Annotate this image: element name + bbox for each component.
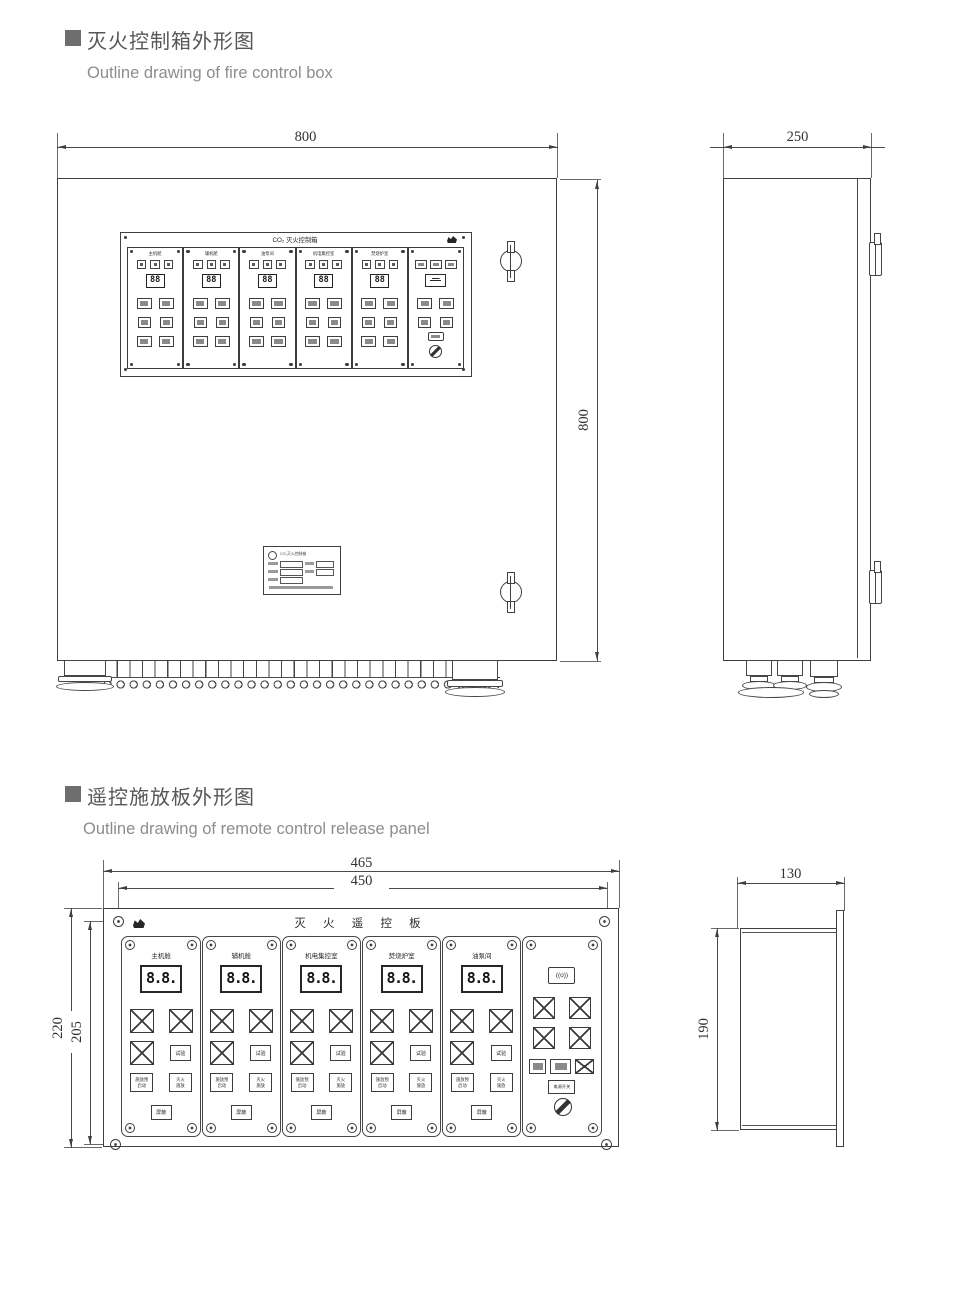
display-row: 8.8. (363, 965, 440, 993)
panel-module: 辅机舱 88 (183, 247, 239, 369)
power-switch-label: 电源开关 (548, 1080, 575, 1094)
button-row (409, 298, 463, 309)
display-row: 88 (353, 274, 407, 288)
indicator-lamp (389, 260, 399, 269)
module-label: 主机舱 (128, 251, 182, 257)
prestart-button: 施放预 启动 (130, 1073, 153, 1092)
indicator-lamp-row (297, 260, 351, 269)
module-screw-icon (366, 940, 376, 950)
indicator-lamp (305, 260, 315, 269)
module-screw-icon (458, 363, 461, 366)
module-screw-icon (366, 1123, 376, 1133)
dimension-arrow (88, 1136, 92, 1144)
extension-line (619, 860, 620, 908)
mask-button: 屏蔽 (471, 1105, 492, 1120)
release-label-2: 施放 (176, 1083, 185, 1088)
section-bullet-square (65, 30, 81, 46)
panel-button (271, 298, 286, 309)
lamp-row (523, 1027, 600, 1049)
dimension-arrow (599, 886, 607, 890)
nameplate-field-label (305, 570, 314, 573)
extension-line (103, 860, 104, 908)
module-screw-icon (233, 363, 236, 366)
nameplate-field-label (268, 570, 278, 573)
lamp-test-row: 试验 (122, 1041, 199, 1065)
button-row (184, 317, 238, 328)
cable-gland-row (101, 679, 499, 690)
door-latch-icon (499, 239, 525, 287)
module-screw-icon (507, 940, 517, 950)
action-button-row: 施放预 启动 灭火 施放 (363, 1073, 440, 1092)
prestart-button: 施放预 启动 (371, 1073, 394, 1092)
button-row (297, 336, 351, 347)
dimension-arrow (119, 886, 127, 890)
button-row (409, 317, 463, 328)
indicator-lamp-x (249, 1009, 273, 1033)
panel-module: 机电集控室 88 (296, 247, 352, 369)
dimension-arrow (715, 1122, 719, 1130)
display-row: 8.8. (443, 965, 520, 993)
indicator-lamp (362, 260, 372, 269)
dimension-line (57, 147, 558, 148)
test-button: 试验 (170, 1045, 191, 1061)
dimension-arrow (69, 909, 73, 917)
test-button: 试验 (250, 1045, 271, 1061)
dim-panel-outer-width: 465 (334, 855, 389, 871)
test-button: 试验 (410, 1045, 431, 1061)
module-screw-icon (267, 940, 277, 950)
display-row: 88 (128, 274, 182, 288)
door-edge-line (857, 179, 858, 658)
module-screw-icon (206, 1123, 216, 1133)
indicator-lamp-row (184, 260, 238, 269)
panel-button (327, 336, 342, 347)
action-button-row: 施放预 启动 灭火 施放 (122, 1073, 199, 1092)
section1-title-cn: 灭火控制箱外形图 (87, 25, 255, 54)
indicator-lamp-row (240, 260, 294, 269)
dim-panel-inner-width: 450 (334, 873, 389, 889)
cable-gland-comb (104, 660, 496, 678)
panel-button (384, 317, 397, 328)
display-row: 8.8. (203, 965, 280, 993)
module-screw-icon (411, 363, 414, 366)
indicator-lamp-x (290, 1041, 314, 1065)
module-label: 机电集控室 (297, 251, 351, 257)
dim-remote-height: 190 (696, 1008, 712, 1050)
dimension-arrow (58, 145, 66, 149)
door-latch-icon (499, 570, 525, 618)
module-label: 焚烧炉室 (363, 950, 440, 960)
panel-button (193, 336, 208, 347)
module-label: 机电集控室 (283, 950, 360, 960)
test-button: 试验 (491, 1045, 512, 1061)
extension-line (560, 179, 601, 180)
dimension-line (717, 928, 718, 1131)
module-screw-icon (267, 1123, 277, 1133)
display-row: 8.8. (283, 965, 360, 993)
panel-button (272, 317, 285, 328)
module-screw-icon (125, 1123, 135, 1133)
action-button-row: 施放预 启动 灭火 施放 (283, 1073, 360, 1092)
section1-title-en: Outline drawing of fire control box (87, 64, 333, 83)
button-row (184, 336, 238, 347)
mount-foot (452, 660, 498, 680)
display-row: 8.8. (122, 965, 199, 993)
prestart-label-2: 启动 (137, 1083, 146, 1088)
latch-slot (510, 576, 512, 609)
lamp-row (283, 1009, 360, 1033)
indicator-lamp (193, 260, 203, 269)
indicator-lamp-x (533, 1027, 555, 1049)
panel-button (305, 336, 320, 347)
seven-segment-display: 88 (202, 274, 221, 288)
module-screw-icon (289, 363, 292, 366)
module-label: 油泵间 (443, 950, 520, 960)
latch-slot (510, 245, 512, 278)
section2-title-cn: 遥控施放板外形图 (87, 781, 255, 810)
lamp-test-row: 试验 (283, 1041, 360, 1065)
indicator-lamp-x (169, 1009, 193, 1033)
module-screw-icon (458, 250, 461, 253)
dimension-arrow (724, 145, 732, 149)
indicator-lamp-x (210, 1041, 234, 1065)
dimension-arrow (595, 652, 599, 660)
mask-button: 屏蔽 (231, 1105, 252, 1120)
module-screw-icon (187, 1123, 197, 1133)
hinge-icon (869, 570, 882, 604)
section-bullet-square (65, 786, 81, 802)
mount-foot-base (56, 682, 114, 691)
section2-title-en: Outline drawing of remote control releas… (83, 820, 430, 839)
lamp-row (523, 997, 600, 1019)
sounder-row: ((o)) (523, 967, 600, 984)
panel-button (249, 298, 264, 309)
meter-icon (425, 274, 446, 287)
module-screw-icon (588, 1123, 598, 1133)
lamp-row (443, 1009, 520, 1033)
nameplate-title: CO₂灭火控制箱 (280, 552, 332, 557)
panel-button (529, 1059, 546, 1074)
panel-module: 油泵间 88 (239, 247, 295, 369)
cable-gland-base-wide (738, 687, 804, 698)
dimension-arrow (88, 922, 92, 930)
display-row: 88 (240, 274, 294, 288)
button-row (353, 336, 407, 347)
mount-screw-icon (110, 1139, 121, 1150)
extension-line (723, 133, 724, 178)
extension-line (57, 133, 58, 178)
dim-panel-inner-height: 205 (69, 1011, 85, 1053)
panel-button (249, 336, 264, 347)
release-label-2: 施放 (256, 1083, 265, 1088)
remote-module: 辅机舱 8.8. 试验 (202, 936, 281, 1137)
nameplate-field-box (280, 577, 303, 584)
indicator-lamp-row (353, 260, 407, 269)
button-row (128, 317, 182, 328)
extension-line (557, 133, 558, 178)
dimension-line (737, 883, 845, 884)
remote-module-common: ((o)) 电源开关 (522, 936, 601, 1137)
indicator-lamp-x (130, 1009, 154, 1033)
indicator-lamp-x (450, 1041, 474, 1065)
prestart-button: 施放预 启动 (210, 1073, 233, 1092)
action-button-row: 施放预 启动 灭火 施放 (443, 1073, 520, 1092)
nameplate-field-box (316, 561, 334, 568)
indicator-lamp (164, 260, 174, 269)
indicator-lamp-x (489, 1009, 513, 1033)
module-screw-icon (526, 940, 536, 950)
seven-segment-display: 8.8. (140, 965, 182, 993)
module-screw-icon (299, 363, 302, 366)
mount-screw-icon (601, 1139, 612, 1150)
button-row (353, 317, 407, 328)
module-screw-icon (125, 940, 135, 950)
module-screw-icon (187, 940, 197, 950)
indicator-lamp-x (533, 997, 555, 1019)
indicator-lamp (445, 260, 457, 269)
seven-segment-display: 8.8. (461, 965, 503, 993)
indicator-lamp (207, 260, 217, 269)
release-button: 灭火 施放 (249, 1073, 272, 1092)
indicator-lamp-x (409, 1009, 433, 1033)
indicator-lamp (375, 260, 385, 269)
plate-inner-line (742, 1125, 836, 1126)
extension-line (560, 661, 601, 662)
lamp-test-row: 试验 (203, 1041, 280, 1065)
panel-button (383, 336, 398, 347)
dimension-arrow (836, 881, 844, 885)
indicator-lamp-x (569, 1027, 591, 1049)
panel-button (362, 317, 375, 328)
mask-button-row: 屏蔽 (363, 1105, 440, 1120)
prestart-label-2: 启动 (298, 1083, 307, 1088)
seven-segment-display: 8.8. (381, 965, 423, 993)
panel-button (417, 298, 432, 309)
mask-button: 屏蔽 (151, 1105, 172, 1120)
release-label-2: 施放 (417, 1083, 426, 1088)
nameplate-maker-text (269, 586, 333, 589)
panel-button (193, 298, 208, 309)
dimension-arrow (863, 145, 871, 149)
control-panel-title: CO₂ 灭火控制箱 (120, 235, 470, 244)
panel-module-common (408, 247, 464, 369)
mask-button-row: 屏蔽 (283, 1105, 360, 1120)
panel-button (194, 317, 207, 328)
nameplate: CO₂灭火控制箱 (263, 546, 341, 595)
panel-button (361, 336, 376, 347)
dim-box-depth: 250 (770, 129, 825, 145)
nameplate-field-box (280, 569, 303, 576)
button-row (353, 298, 407, 309)
indicator-lamp (137, 260, 147, 269)
module-screw-icon (446, 1123, 456, 1133)
mount-foot (64, 660, 106, 676)
indicator-lamp-x (130, 1041, 154, 1065)
mask-button-row: 屏蔽 (122, 1105, 199, 1120)
power-rotary-switch-icon (554, 1098, 572, 1116)
panel-button (159, 336, 174, 347)
indicator-lamp (276, 260, 286, 269)
sounder-icon: ((o)) (548, 967, 575, 984)
panel-module: 主机舱 88 (127, 247, 183, 369)
button-row (128, 336, 182, 347)
module-screw-icon (345, 363, 348, 366)
indicator-lamp-x (569, 997, 591, 1019)
nameplate-logo-icon (268, 551, 277, 560)
mask-button-row: 屏蔽 (203, 1105, 280, 1120)
panel-button (361, 298, 376, 309)
button-row (297, 317, 351, 328)
indicator-lamp (319, 260, 329, 269)
switch-label (428, 332, 444, 341)
power-label-row: 电源开关 (523, 1080, 600, 1094)
button-row (297, 298, 351, 309)
panel-button (215, 336, 230, 347)
module-label: 焚烧炉室 (353, 251, 407, 257)
remote-panel-modules: 主机舱 8.8. 试验 (121, 936, 602, 1137)
test-button: 试验 (330, 1045, 351, 1061)
dim-box-height: 800 (576, 399, 592, 441)
indicator-lamp (415, 260, 427, 269)
module-screw-icon (186, 363, 189, 366)
prestart-button: 施放预 启动 (451, 1073, 474, 1092)
indicator-lamp-x (450, 1009, 474, 1033)
panel-button (305, 298, 320, 309)
lamp-row (203, 1009, 280, 1033)
indicator-lamp (332, 260, 342, 269)
indicator-lamp-x (370, 1009, 394, 1033)
remote-module: 油泵间 8.8. 试验 (442, 936, 521, 1137)
display-row: 88 (297, 274, 351, 288)
panel-button (137, 298, 152, 309)
panel-button (271, 336, 286, 347)
module-label: 辅机舱 (184, 251, 238, 257)
indicator-lamp-x (370, 1041, 394, 1065)
extension-line (64, 1147, 102, 1148)
nameplate-field-label (305, 562, 314, 565)
indicator-lamp-row (409, 260, 463, 269)
seven-segment-display: 88 (258, 274, 277, 288)
module-screw-icon (347, 940, 357, 950)
module-label: 主机舱 (122, 950, 199, 960)
mount-screw-icon (113, 916, 124, 927)
extension-line (871, 133, 872, 178)
remote-panel-title: 灭 火 遥 控 板 (200, 915, 522, 931)
module-screw-icon (427, 940, 437, 950)
dimension-arrow (595, 181, 599, 189)
panel-button (439, 298, 454, 309)
module-screw-icon (177, 363, 180, 366)
panel-button (550, 1059, 571, 1074)
nameplate-field-box (280, 561, 303, 568)
dim-remote-depth: 130 (763, 866, 818, 882)
remote-panel-side-view (740, 928, 838, 1130)
prestart-button: 施放预 启动 (291, 1073, 314, 1092)
dimension-arrow (104, 869, 112, 873)
panel-button (138, 317, 151, 328)
mask-button: 屏蔽 (311, 1105, 332, 1120)
release-button: 灭火 施放 (329, 1073, 352, 1092)
button-row (184, 298, 238, 309)
panel-button (215, 298, 230, 309)
display-row: 88 (184, 274, 238, 288)
module-screw-icon (355, 363, 358, 366)
nameplate-field-label (268, 562, 278, 565)
release-label-2: 施放 (336, 1083, 345, 1088)
fire-box-side-view (723, 178, 871, 661)
indicator-lamp-row (128, 260, 182, 269)
nameplate-field-box (316, 569, 334, 576)
indicator-lamp-x (575, 1059, 594, 1074)
panel-button (418, 317, 431, 328)
hinge-icon (869, 242, 882, 276)
plate-inner-line (742, 932, 836, 933)
seven-segment-display: 8.8. (300, 965, 342, 993)
dim-box-width: 800 (278, 129, 333, 145)
cable-gland (746, 660, 772, 676)
dimension-arrow (69, 1139, 73, 1147)
module-screw-icon (411, 250, 414, 253)
module-screw-icon (286, 1123, 296, 1133)
module-screw-icon (526, 1123, 536, 1133)
dimension-arrow (549, 145, 557, 149)
module-screw-icon (347, 1123, 357, 1133)
release-button: 灭火 施放 (490, 1073, 513, 1092)
release-button: 灭火 施放 (169, 1073, 192, 1092)
prestart-label-2: 启动 (458, 1083, 467, 1088)
rotary-switch-icon (429, 345, 442, 358)
module-label: 辅机舱 (203, 950, 280, 960)
panel-button (327, 298, 342, 309)
release-button: 灭火 施放 (409, 1073, 432, 1092)
dimension-arrow (611, 869, 619, 873)
seven-segment-display: 88 (314, 274, 333, 288)
panel-button (306, 317, 319, 328)
release-label-2: 施放 (497, 1083, 506, 1088)
meter-row (409, 274, 463, 287)
mask-button: 屏蔽 (391, 1105, 412, 1120)
module-screw-icon (401, 363, 404, 366)
button-row (240, 317, 294, 328)
panel-flange (836, 910, 844, 1147)
panel-button (383, 298, 398, 309)
panel-button (160, 317, 173, 328)
module-screw-icon (130, 363, 133, 366)
dimension-line (103, 871, 620, 872)
module-screw-icon (242, 363, 245, 366)
indicator-lamp-x (329, 1009, 353, 1033)
button-row (240, 298, 294, 309)
module-screw-icon (206, 940, 216, 950)
remote-module: 主机舱 8.8. 试验 (121, 936, 200, 1137)
indicator-lamp (263, 260, 273, 269)
remote-module: 焚烧炉室 8.8. 试验 (362, 936, 441, 1137)
lamp-row (122, 1009, 199, 1033)
prestart-label-2: 启动 (218, 1083, 227, 1088)
module-screw-icon (507, 1123, 517, 1133)
panel-button (328, 317, 341, 328)
seven-segment-display: 88 (146, 274, 165, 288)
module-screw-icon (286, 940, 296, 950)
indicator-lamp (150, 260, 160, 269)
indicator-lamp (220, 260, 230, 269)
panel-button (440, 317, 453, 328)
button-row (240, 336, 294, 347)
panel-button (250, 317, 263, 328)
lamp-row (363, 1009, 440, 1033)
prestart-label-2: 启动 (378, 1083, 387, 1088)
indicator-lamp (430, 260, 442, 269)
